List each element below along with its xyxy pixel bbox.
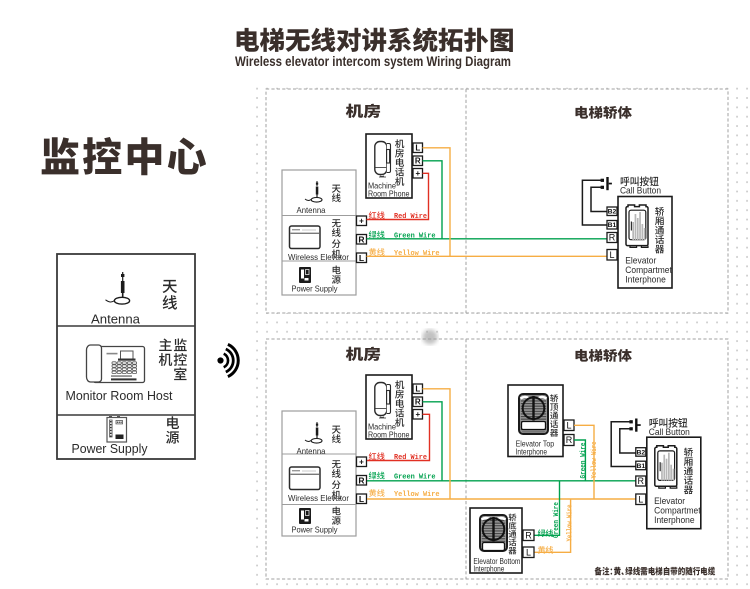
svg-text:Wireless elevator intercom sys: Wireless elevator intercom system Wiring… — [235, 54, 511, 69]
svg-text:R: R — [566, 435, 573, 445]
svg-text:R: R — [415, 157, 421, 166]
svg-text:B2: B2 — [636, 449, 645, 456]
svg-text:L: L — [415, 144, 420, 153]
svg-text:Wireless Elevator: Wireless Elevator — [288, 252, 349, 262]
svg-text:Green Wire: Green Wire — [394, 473, 436, 481]
svg-text:+: + — [415, 410, 420, 419]
svg-text:Call Button: Call Button — [649, 427, 690, 437]
svg-text:Interphone: Interphone — [516, 448, 548, 457]
svg-text:Monitor Room Host: Monitor Room Host — [66, 389, 174, 403]
svg-text:Interphone: Interphone — [654, 515, 695, 525]
svg-text:Interphone: Interphone — [473, 565, 504, 574]
svg-text:B1: B1 — [636, 463, 645, 470]
svg-text:Antenna: Antenna — [297, 205, 326, 215]
svg-text:Red Wire: Red Wire — [394, 213, 427, 221]
svg-text:L: L — [415, 385, 420, 394]
svg-text:Elevator: Elevator — [625, 255, 656, 265]
svg-text:L: L — [566, 421, 571, 431]
svg-text:R: R — [358, 475, 364, 485]
svg-text:Power Supply: Power Supply — [292, 284, 339, 294]
svg-text:R: R — [525, 531, 532, 541]
svg-text:L: L — [359, 494, 364, 504]
svg-text:Room Phone: Room Phone — [368, 188, 410, 198]
svg-text:L: L — [359, 253, 364, 263]
svg-text:Interphone: Interphone — [625, 274, 666, 284]
svg-text:+: + — [359, 217, 364, 226]
svg-text:Call Button: Call Button — [620, 186, 661, 196]
svg-text:+: + — [415, 169, 420, 178]
svg-text:R: R — [609, 233, 616, 243]
svg-text:L: L — [638, 495, 643, 505]
svg-text:Power Supply: Power Supply — [292, 525, 339, 535]
svg-text:+: + — [359, 458, 364, 467]
svg-text:R: R — [358, 234, 364, 244]
svg-text:Red Wire: Red Wire — [394, 454, 427, 462]
svg-text:Elevator: Elevator — [654, 496, 685, 506]
svg-text:R: R — [638, 476, 645, 486]
svg-text:Green Wire: Green Wire — [580, 442, 588, 478]
svg-text:Antenna: Antenna — [91, 313, 140, 327]
svg-text:Power Supply: Power Supply — [72, 442, 149, 456]
svg-text:Wireless Elevator: Wireless Elevator — [288, 493, 349, 503]
svg-text:Green Wire: Green Wire — [394, 232, 436, 240]
svg-text:L: L — [609, 250, 614, 260]
svg-text:Green Wire: Green Wire — [553, 502, 561, 538]
svg-text:R: R — [415, 398, 421, 407]
svg-text:Antenna: Antenna — [297, 446, 326, 456]
svg-text:B1: B1 — [608, 222, 617, 229]
svg-text:Yellow Wire: Yellow Wire — [394, 250, 440, 258]
svg-text:Yellow Wire: Yellow Wire — [394, 491, 440, 499]
svg-text:L: L — [526, 548, 531, 558]
svg-text:Yellow Wire: Yellow Wire — [591, 441, 599, 478]
svg-text:Yellow Wire: Yellow Wire — [567, 504, 575, 541]
svg-text:B2: B2 — [608, 209, 617, 216]
svg-text:Room Phone: Room Phone — [368, 429, 410, 439]
